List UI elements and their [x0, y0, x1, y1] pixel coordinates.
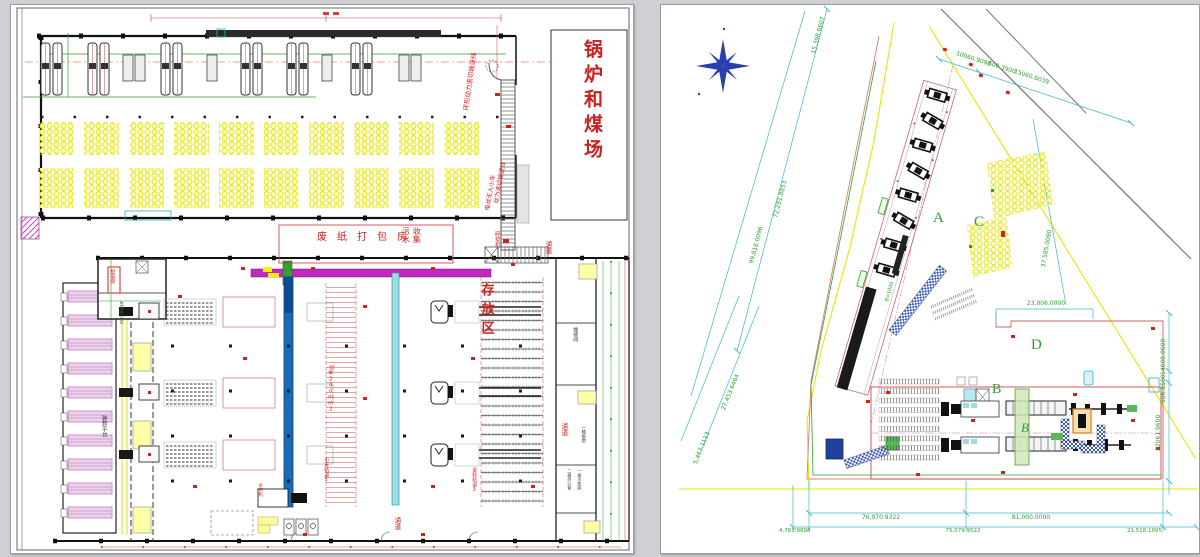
road-lines: [941, 9, 1191, 259]
centerlines-pink: [871, 65, 1161, 433]
rail-rack-strip: [326, 283, 356, 507]
site-plan-drawing: [661, 5, 1199, 553]
orange-machine-core: [1078, 414, 1086, 428]
cyan-bin-1: [1084, 371, 1093, 385]
coal-yard-patches: [967, 151, 1053, 277]
building-a: [828, 78, 956, 396]
compass-rose: [696, 28, 750, 95]
floor-plan-drawing: [11, 5, 633, 553]
unwinder-machines: [41, 43, 421, 95]
paper-roll-stacks: [21, 117, 511, 239]
ladder-conveyor: [486, 25, 529, 250]
dock-trucks: [61, 291, 112, 518]
floor-plan-sheet: 锅炉和煤场 环形动力滚切输送线 电动无人小车 动力滚切输送线 碎浆机 废纸打包房…: [10, 4, 634, 554]
door-arcs: [291, 532, 478, 541]
bottom-fixtures: [211, 489, 318, 535]
production-area-b: [879, 371, 1159, 465]
site-plan-sheet: A C D B B B=1000 15,398.6607 72,281.8853…: [660, 4, 1200, 554]
production-line-1: [941, 401, 1131, 417]
desktop-background: 锅炉和煤场 环形动力滚切输送线 电动无人小车 动力滚切输送线 碎浆机 废纸打包房…: [0, 0, 1200, 557]
overhead-conveyor: [151, 12, 501, 37]
storage-rack-region: [481, 277, 543, 507]
boiler-coal-yard: [551, 30, 627, 220]
fan-racks: [931, 289, 977, 319]
gantry-crane: [1015, 389, 1029, 465]
